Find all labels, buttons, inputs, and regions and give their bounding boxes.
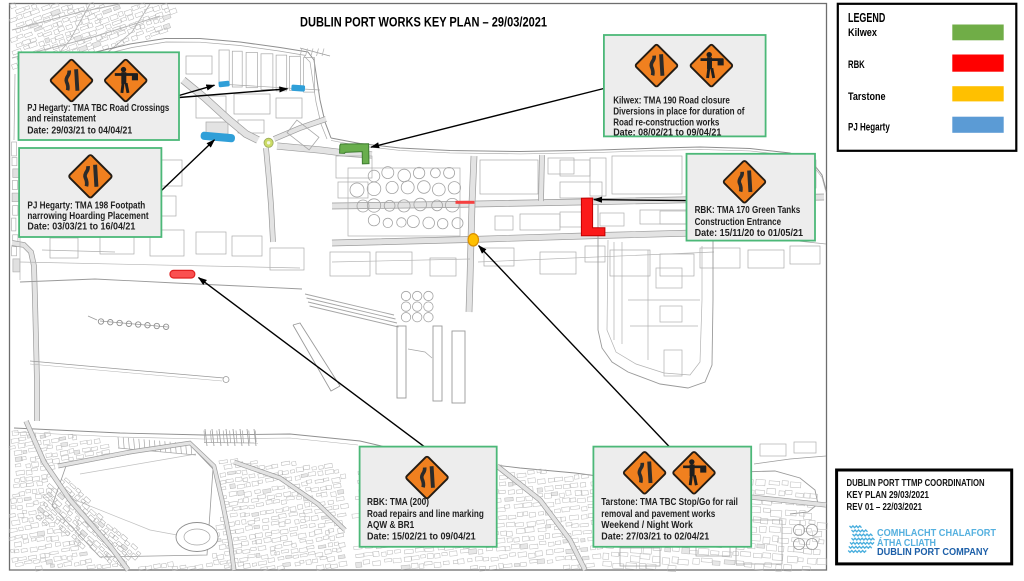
svg-text:DUBLIN PORT TTMP COORDINATION: DUBLIN PORT TTMP COORDINATION [847,477,985,489]
svg-text:RBK: TMA 170 Green Tanks: RBK: TMA 170 Green Tanks [695,205,801,216]
svg-text:KEY PLAN 29/03/2021: KEY PLAN 29/03/2021 [847,489,930,501]
svg-text:PJ Hegarty: TMA 198 Footpath: PJ Hegarty: TMA 198 Footpath [27,200,145,211]
svg-text:REV 01 – 22/03/2021: REV 01 – 22/03/2021 [847,501,923,513]
svg-text:DUBLIN PORT WORKS KEY PLAN – 2: DUBLIN PORT WORKS KEY PLAN – 29/03/2021 [300,15,547,31]
svg-text:Construction Entrance: Construction Entrance [695,217,782,228]
svg-text:AQW & BR1: AQW & BR1 [367,520,415,531]
svg-text:Tarstone: TMA TBC Stop/Go for: Tarstone: TMA TBC Stop/Go for rail [601,497,738,508]
svg-text:Weekend / Night Work: Weekend / Night Work [601,520,693,531]
svg-text:and reinstatement: and reinstatement [27,114,96,125]
svg-text:removal and pavement works: removal and pavement works [601,509,715,520]
svg-text:Kilwex: Kilwex [848,27,878,39]
svg-text:Date: 03/03/21 to 16/04/21: Date: 03/03/21 to 16/04/21 [27,221,135,232]
svg-text:PJ Hegarty: PJ Hegarty [848,121,890,133]
svg-text:Date: 27/03/21 to 02/04/21: Date: 27/03/21 to 02/04/21 [601,532,709,543]
svg-text:Diversions in place for durati: Diversions in place for duration of [613,107,745,118]
svg-text:RBK: RBK [848,59,865,71]
svg-text:Road repairs and line marking: Road repairs and line marking [367,509,484,520]
svg-text:LEGEND: LEGEND [848,11,885,25]
svg-text:RBK: TMA (200): RBK: TMA (200) [367,497,429,508]
svg-text:DUBLIN PORT COMPANY: DUBLIN PORT COMPANY [877,547,989,558]
svg-text:Tarstone: Tarstone [848,91,886,103]
svg-text:Date: 29/03/21 to 04/04/21: Date: 29/03/21 to 04/04/21 [27,126,132,137]
svg-text:Date: 15/02/21 to 09/04/21: Date: 15/02/21 to 09/04/21 [367,532,476,543]
svg-text:Date: 15/11/20 to 01/05/21: Date: 15/11/20 to 01/05/21 [695,228,804,239]
svg-text:Kilwex: TMA 190 Road closure: Kilwex: TMA 190 Road closure [613,95,730,106]
svg-text:PJ Hegarty: TMA TBC Road Cross: PJ Hegarty: TMA TBC Road Crossings [27,103,169,114]
svg-text:narrowing Hoarding Placement: narrowing Hoarding Placement [27,211,149,222]
svg-text:Date: 08/02/21 to 09/04/21: Date: 08/02/21 to 09/04/21 [613,127,722,138]
